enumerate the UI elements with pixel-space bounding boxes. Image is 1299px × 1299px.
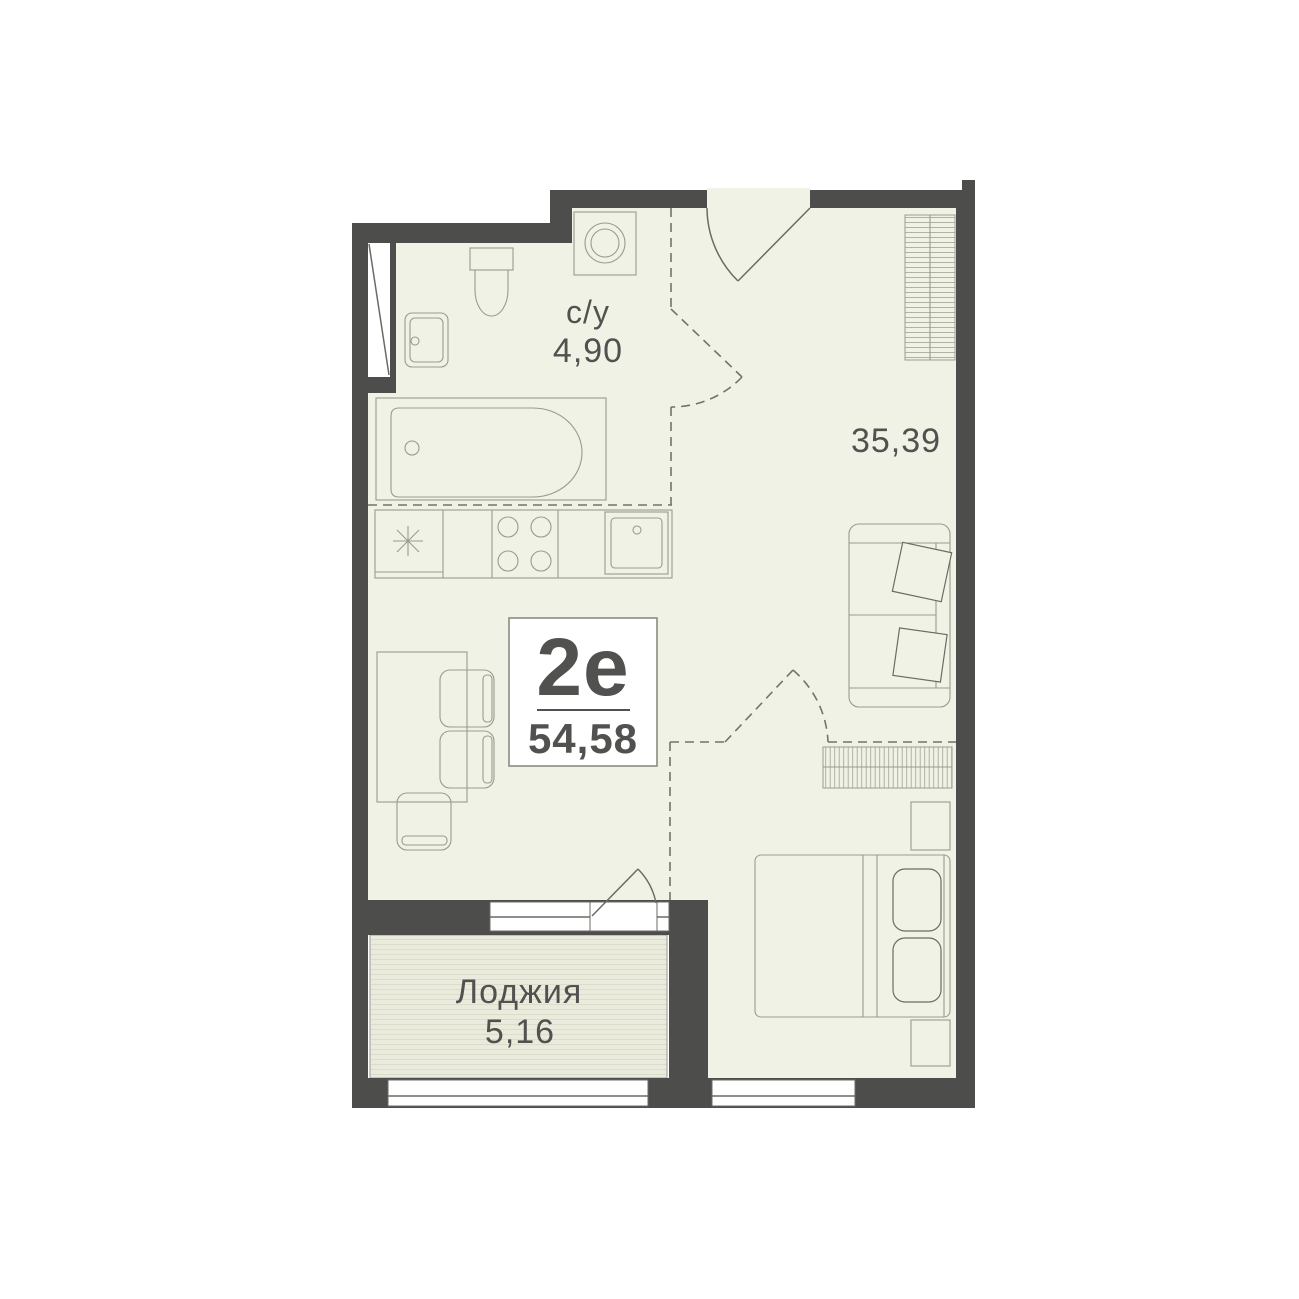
- living-area-label: 35,39: [851, 422, 941, 460]
- wall-shaft-right: [390, 243, 396, 393]
- wall-top-mid: [572, 190, 707, 208]
- floor-plan-svg: 2е 54,58 с/у 4,90 35,39 Лоджия 5,16: [0, 0, 1299, 1299]
- unit-label-box: 2е 54,58: [509, 618, 657, 766]
- unit-type-label: 2е: [536, 622, 629, 713]
- bed-pillow: [893, 938, 941, 1002]
- sofa-pillow: [893, 628, 947, 682]
- wall-pier: [669, 900, 708, 1108]
- vent-shaft: [368, 243, 390, 377]
- wall-top-left: [352, 223, 572, 243]
- sofa-pillow: [892, 542, 951, 601]
- dresser: [823, 747, 952, 788]
- floor-plan-page: 2е 54,58 с/у 4,90 35,39 Лоджия 5,16: [0, 0, 1299, 1299]
- loggia-name-label: Лоджия: [456, 973, 582, 1011]
- wall-left: [352, 223, 368, 1108]
- bed-pillow: [893, 869, 941, 931]
- bedroom-window: [712, 1080, 855, 1106]
- loggia-area-label: 5,16: [485, 1013, 555, 1051]
- wall-top-step: [550, 190, 572, 223]
- wall-shaft-bottom: [352, 377, 396, 393]
- wall-top-right: [810, 190, 975, 208]
- wall-right: [956, 190, 975, 1108]
- bathroom-area-label: 4,90: [553, 332, 623, 370]
- loggia-window: [388, 1080, 648, 1106]
- bathroom-name-label: с/у: [566, 294, 610, 330]
- floor-areas: [368, 188, 956, 1080]
- wardrobe: [905, 215, 955, 360]
- balcony-door-cell: [590, 902, 657, 931]
- fridge-icon: [393, 526, 423, 556]
- unit-area-label: 54,58: [528, 715, 638, 762]
